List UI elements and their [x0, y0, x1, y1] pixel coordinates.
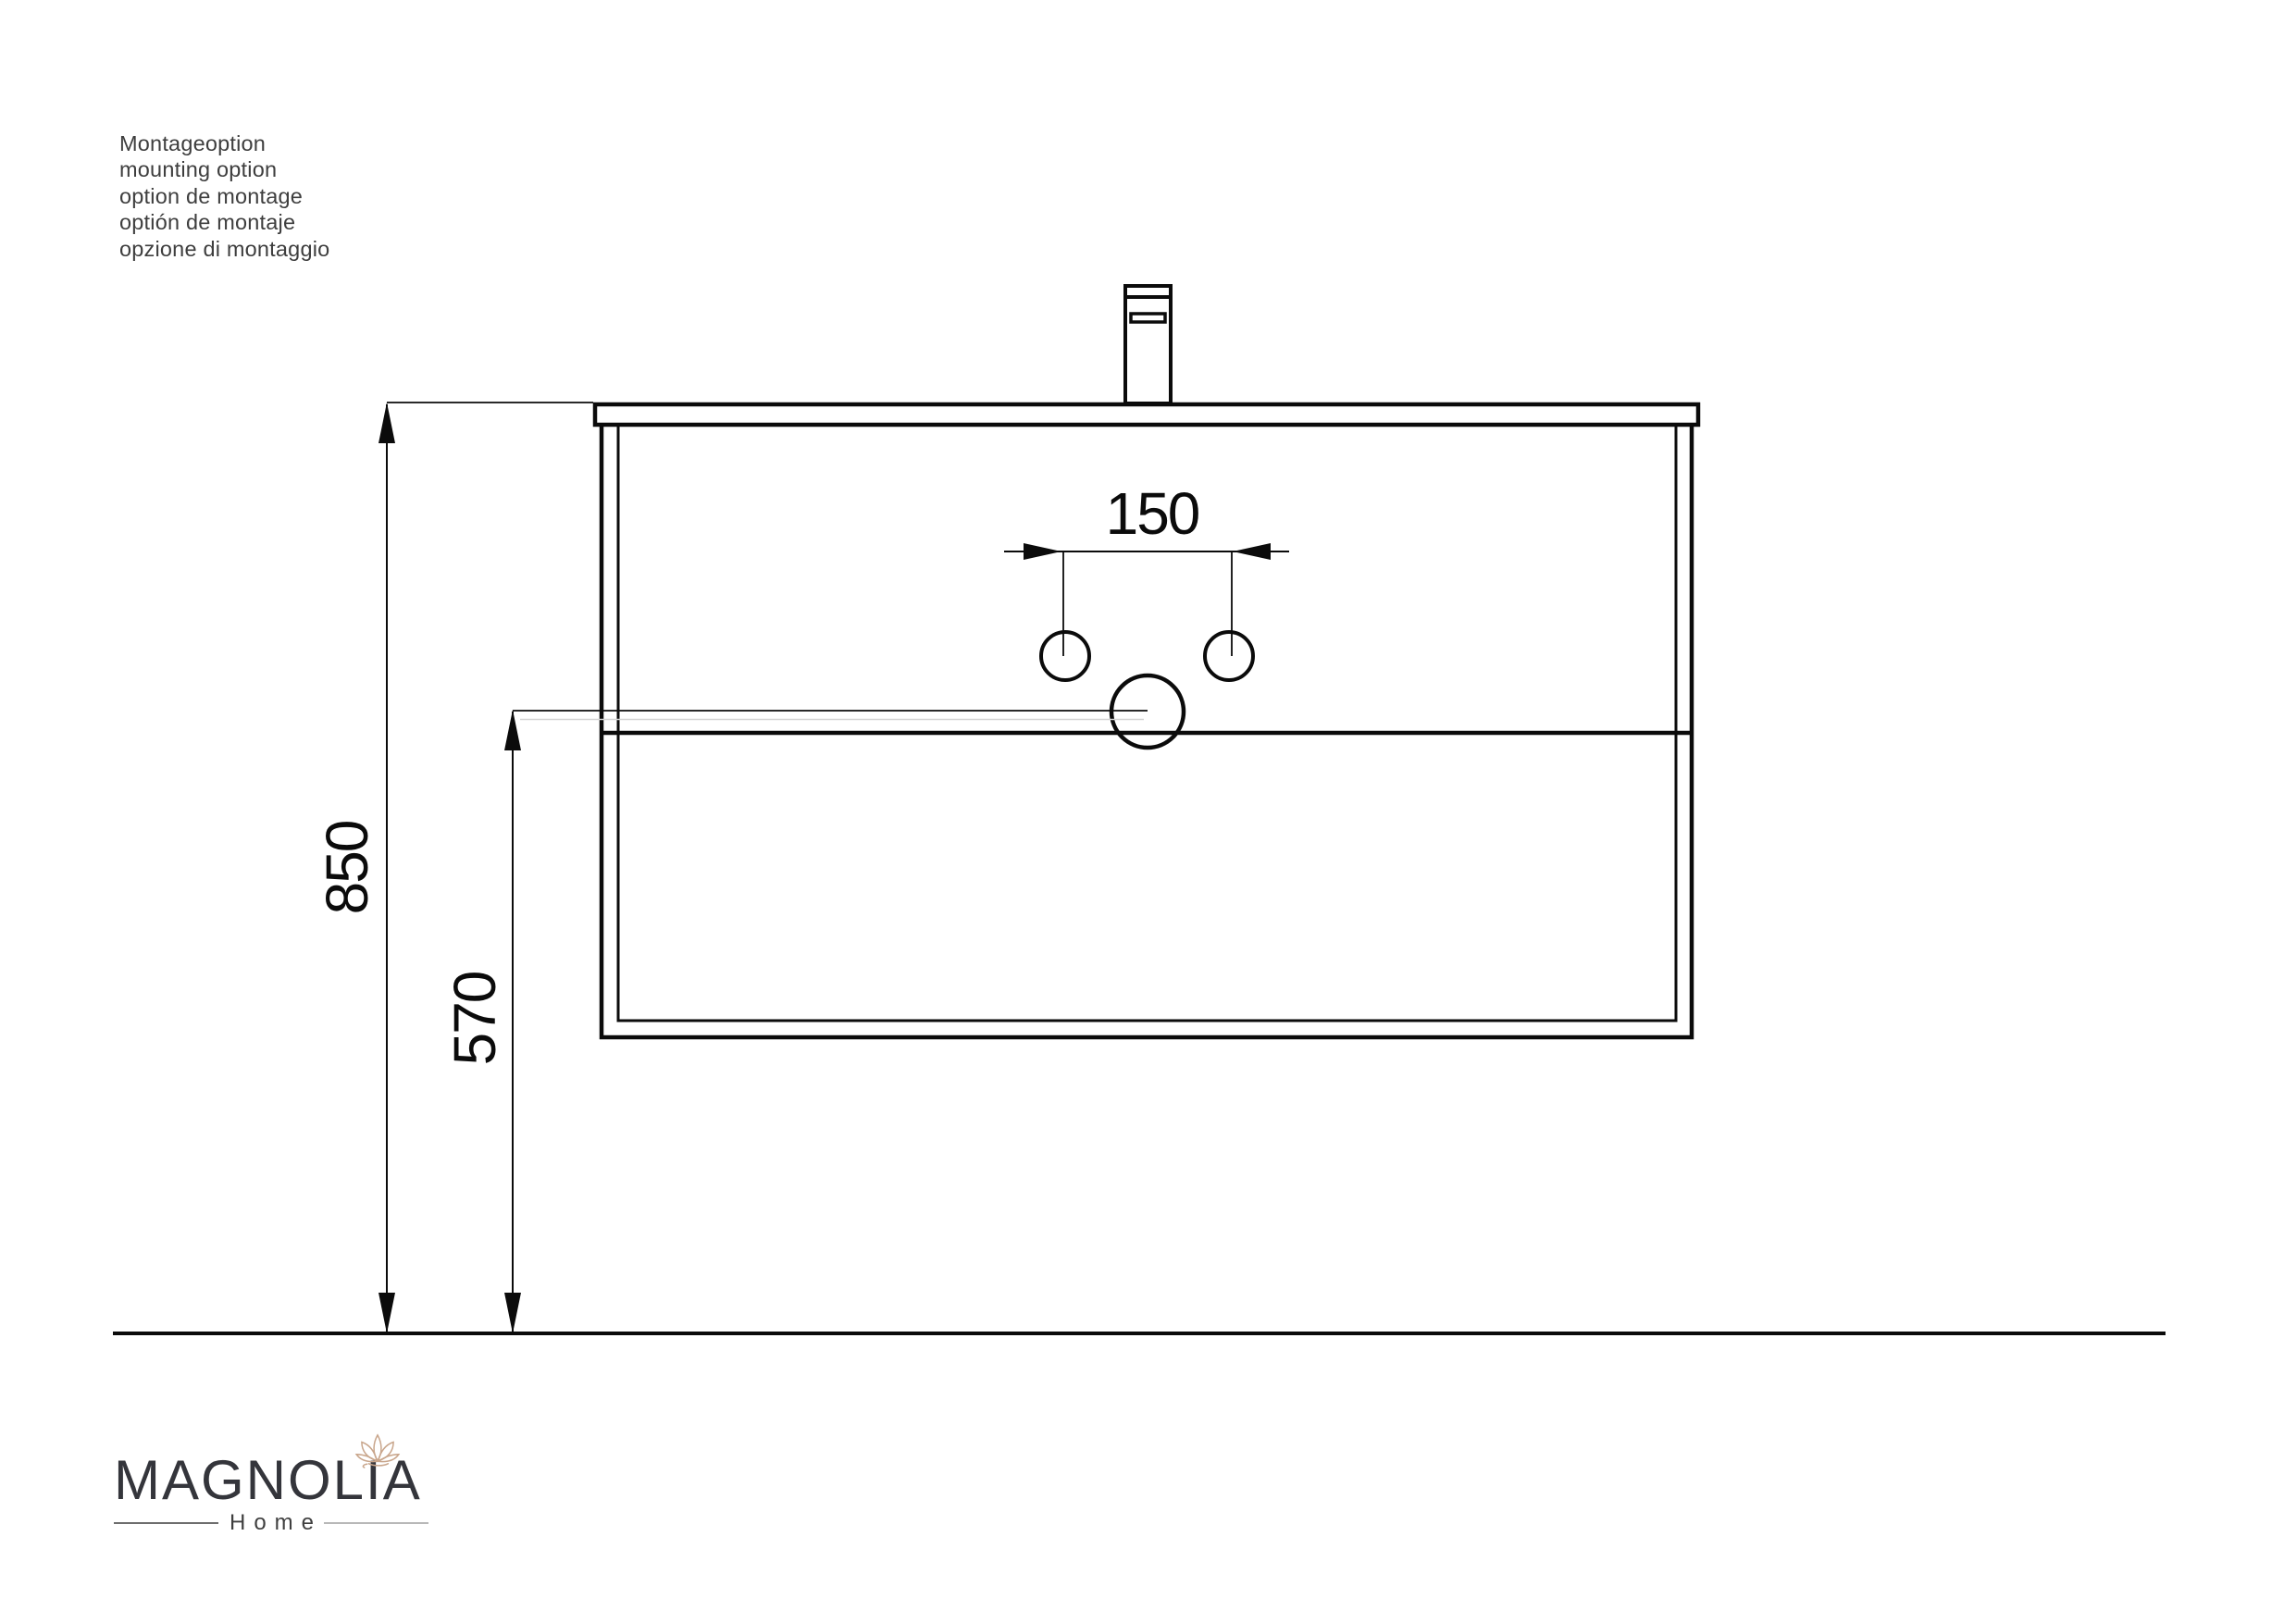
dim570-arrow-down: [504, 1293, 521, 1333]
tagline-rule-left: [114, 1522, 218, 1524]
vanity-front-elevation-drawing: 150 850 570: [0, 0, 2296, 1623]
dim850-arrow-down: [379, 1293, 395, 1333]
dim850-arrow-up: [379, 403, 395, 443]
faucet-hole-right: [1205, 632, 1253, 680]
magnolia-flower-icon: [354, 1433, 402, 1468]
dim570-label: 570: [441, 972, 508, 1065]
dim150-arrow-left: [1024, 543, 1061, 560]
drain-hole: [1111, 675, 1184, 748]
mounting-option-sheet: Montageoption mounting option option de …: [0, 0, 2296, 1623]
tagline-rule-right: [324, 1522, 428, 1524]
brand-tagline: Home: [218, 1510, 324, 1536]
faucet-spout: [1131, 314, 1165, 322]
dim570-arrow-up: [504, 710, 521, 750]
dim150-label: 150: [1106, 480, 1199, 547]
dim150-arrow-right: [1233, 543, 1271, 560]
brand-tagline-row: Home: [114, 1510, 428, 1536]
dim850-label: 850: [314, 821, 380, 914]
countertop: [595, 404, 1698, 425]
brand-logo: MAGNOLIA Home: [114, 1432, 432, 1536]
faucet-body: [1125, 286, 1171, 403]
faucet-hole-left: [1041, 632, 1089, 680]
